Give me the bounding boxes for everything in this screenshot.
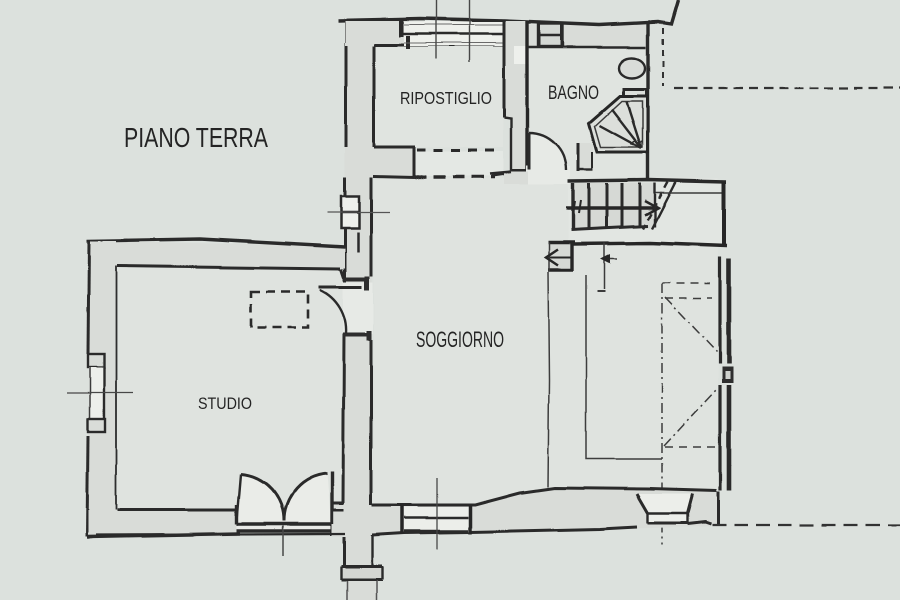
svg-text:RIPOSTIGLIO: RIPOSTIGLIO (400, 88, 492, 108)
svg-text:PIANO TERRA: PIANO TERRA (124, 122, 269, 153)
svg-text:SOGGIORNO: SOGGIORNO (416, 327, 504, 352)
svg-text:STUDIO: STUDIO (198, 394, 252, 413)
svg-text:BAGNO: BAGNO (548, 83, 599, 104)
